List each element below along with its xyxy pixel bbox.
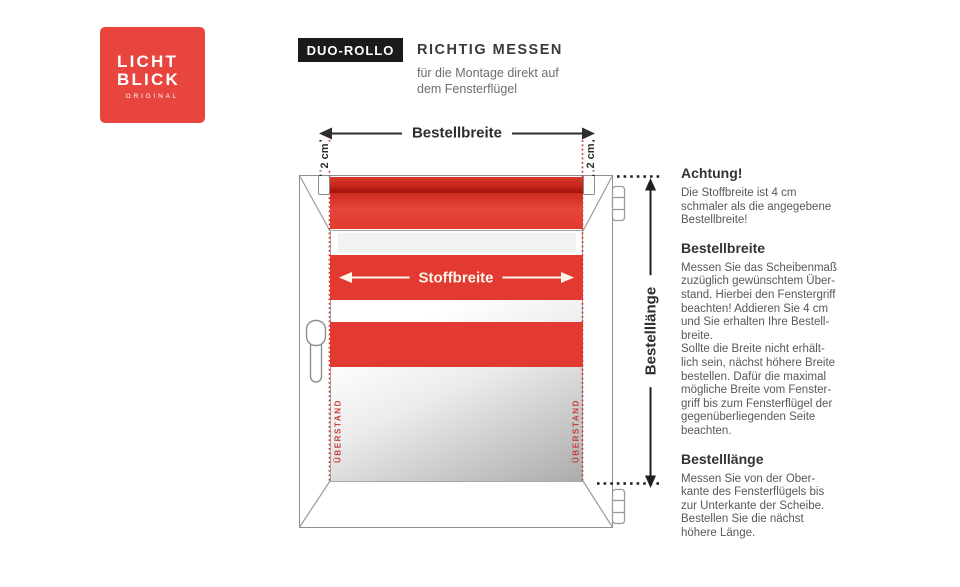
hinge-top-icon: [613, 187, 625, 221]
logo-wordmark: LICHT BLICK: [117, 53, 180, 88]
section-heading-bestelllaenge: Bestelllänge: [681, 450, 886, 468]
section-body-achtung: Die Stoffbreite ist 4 cm schmaler als di…: [681, 187, 886, 228]
overhang-left-label: ÜBERSTAND: [334, 399, 343, 463]
product-badge: DUO-ROLLO: [298, 38, 403, 62]
instructions-column: Achtung! Die Stoffbreite ist 4 cm schmal…: [681, 164, 886, 551]
section-body-bestelllaenge: Messen Sie von der Ober- kante des Fenst…: [681, 473, 886, 541]
roller-tube: [329, 177, 584, 193]
fabric-width-label: Stoffbreite: [410, 270, 503, 287]
order-length-label: Bestelllänge: [643, 275, 660, 387]
page-subtitle: für die Montage direkt auf dem Fensterfl…: [417, 66, 559, 97]
offset-dotted-lines: [321, 140, 594, 176]
section-heading-achtung: Achtung!: [681, 164, 886, 182]
logo-original-tagline: ORIGINAL: [100, 93, 205, 100]
page-title: RICHTIG MESSEN: [417, 42, 563, 58]
hinge-bottom-icon: [613, 490, 625, 524]
overhang-right-label: ÜBERSTAND: [572, 399, 581, 463]
logo-line-blick: BLICK: [117, 71, 180, 89]
section-body-bestellbreite: Messen Sie das Scheibenmaß zuzüglich gew…: [681, 262, 886, 439]
sheer-fabric-band: [338, 233, 576, 252]
blind-fabric-band-top: [330, 193, 583, 229]
roller-bracket-right: [583, 175, 595, 195]
logo-line-licht: LICHT: [117, 53, 180, 71]
offset-left-label: 2 cm: [319, 141, 331, 170]
section-heading-bestellbreite: Bestellbreite: [681, 239, 886, 257]
measuring-guide-page: LICHT BLICK ORIGINAL DUO-ROLLO RICHTIG M…: [0, 0, 960, 587]
offset-right-label: 2 cm: [585, 141, 597, 170]
lichtblick-logo: LICHT BLICK ORIGINAL: [100, 27, 205, 123]
blind-fabric-band-bottom: [330, 322, 583, 367]
order-width-label: Bestellbreite: [402, 125, 512, 142]
roller-bracket-left: [318, 175, 330, 195]
